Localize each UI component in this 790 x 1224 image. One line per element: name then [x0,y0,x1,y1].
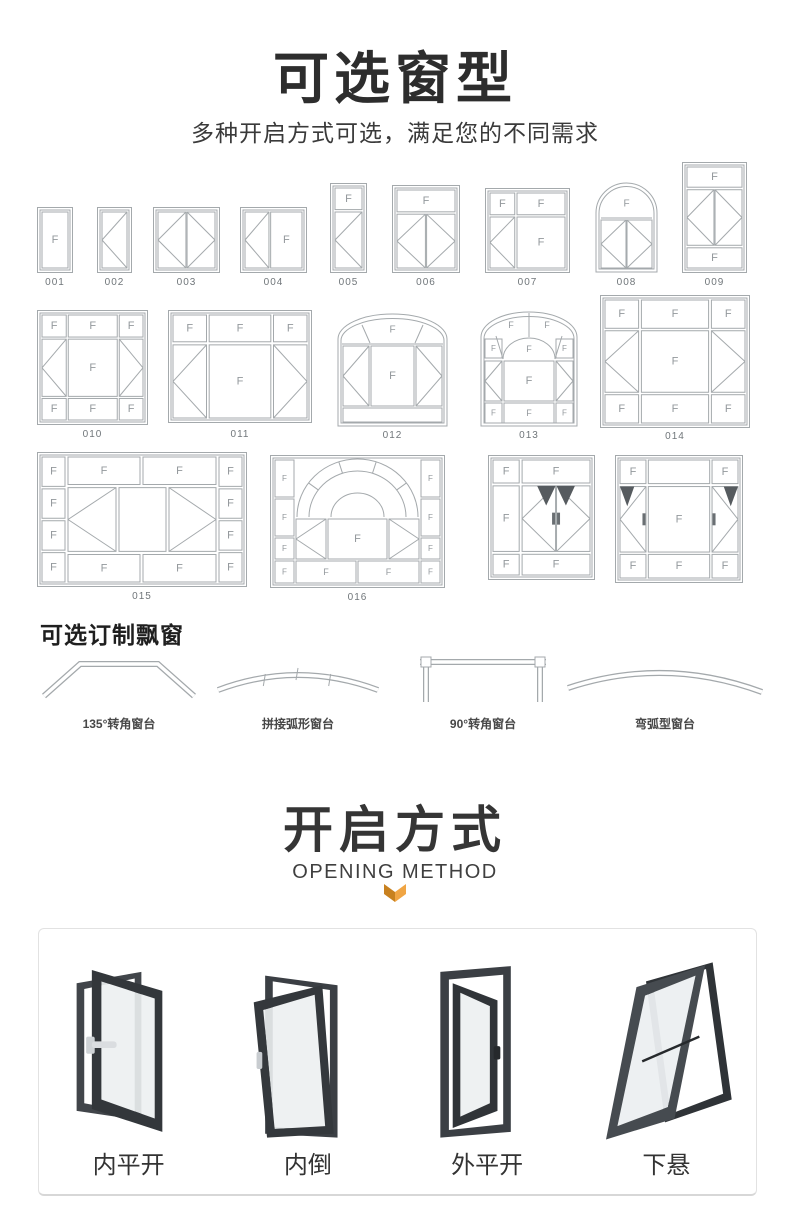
fixed-pane-letter: F [128,320,135,332]
fixed-pane-letter: F [503,559,510,571]
window-code-label: 001 [37,277,73,288]
window-diagram-007: FFF [485,188,570,273]
window-diagram-004: F [240,207,307,273]
window-diagram-001: F [37,207,73,273]
fixed-pane-letter: F [491,409,496,418]
fixed-pane-letter: F [282,474,287,483]
fixed-pane-letter: F [538,237,545,249]
window-code-label: 002 [97,277,132,288]
window-diagram-003 [153,207,220,273]
fixed-pane-letter: F [176,465,183,477]
photo-cell-tilt-in: 内倒 [218,929,397,1194]
window-diagram-009: FF [682,162,747,273]
fixed-pane-letter: F [227,498,234,510]
fixed-pane-letter: F [503,466,510,478]
fixed-pane-letter: F [101,562,108,574]
fixed-pane-letter: F [722,560,729,572]
fixed-pane-letter: F [672,403,679,415]
corner135-profile-drawing [38,650,200,706]
fixed-pane-letter: F [711,171,718,183]
photo-cell-bottom-hung: 下悬 [577,929,756,1194]
fixed-pane-letter: F [50,498,57,510]
fixed-pane-letter: F [508,320,514,330]
photo-cell-inward-casement: 内平开 [39,929,218,1194]
fixed-pane-letter: F [345,193,352,205]
fixed-pane-letter: F [630,466,637,478]
window-diagram-012: FF [337,312,448,427]
bay-item-corner135: 135°转角窗台 [38,650,200,732]
bay-window-heading: 可选订制飘窗 [40,616,184,650]
segmented-arc-profile-drawing [212,650,384,706]
fixed-pane-letter: F [282,544,287,553]
window-code-label: 012 [337,430,448,441]
fixed-pane-letter: F [186,322,193,334]
fixed-pane-letter: F [553,559,560,571]
window-diagram-011: FFFF [168,310,312,423]
photo-cell-outward-casement: 外平开 [398,929,577,1194]
bay-item-corner90: 90°转角窗台 [412,650,554,732]
fixed-pane-letter: F [491,344,496,353]
bay-item-segmented-arc: 拼接弧形窗台 [212,650,384,732]
window-code-label: 009 [682,277,747,288]
opening-method-title: 开启方式 [0,790,790,862]
fixed-pane-letter: F [676,560,683,572]
window-code-label: 007 [485,277,570,288]
fixed-pane-letter: F [544,320,550,330]
fixed-pane-letter: F [227,529,234,541]
fixed-pane-letter: F [237,322,244,334]
opening-method-label: 外平开 [398,1145,577,1180]
window-diagram-005: F [330,183,367,273]
fixed-pane-letter: F [227,466,234,478]
bay-item-curved-arc: 弯弧型窗台 [562,650,768,732]
fixed-pane-letter: F [227,561,234,573]
fixed-pane-letter: F [428,568,433,577]
fixed-pane-letter: F [423,195,430,207]
opening-method-label: 下悬 [577,1145,756,1180]
corner90-profile-drawing [412,650,554,706]
window-diagram-014: FFFFFFF [600,295,750,428]
fixed-pane-letter: F [722,466,729,478]
fixed-pane-letter: F [526,408,532,418]
window-code-label: 006 [392,277,460,288]
window-code-label: 008 [595,277,658,288]
fixed-pane-letter: F [89,320,96,332]
photo-bottom-hung [581,949,751,1149]
window-diagram-013: FFFFFFFFF [480,310,578,427]
window-diagram-extra-17: FFFFFF [615,455,743,583]
fixed-pane-letter: F [526,375,533,387]
fixed-pane-letter: F [51,403,58,415]
fixed-pane-letter: F [711,252,718,264]
bay-label: 90°转角窗台 [412,715,554,732]
down-chevron-icon [382,884,408,904]
window-code-label: 016 [270,592,445,603]
curved-arc-profile-drawing [562,650,768,706]
window-code-label: 015 [37,591,247,602]
fixed-pane-letter: F [562,344,567,353]
fixed-pane-letter: F [51,320,58,332]
fixed-pane-letter: F [428,513,433,522]
fixed-pane-letter: F [538,198,545,210]
window-diagram-016: FFFFFFFFFFF [270,455,445,588]
fixed-pane-letter: F [428,474,433,483]
fixed-pane-letter: F [503,513,510,525]
window-code-label: 011 [168,429,312,440]
bay-label: 拼接弧形窗台 [212,715,384,732]
window-diagram-002 [97,207,132,273]
window-code-label: 004 [240,277,307,288]
fixed-pane-letter: F [630,560,637,572]
opening-method-subtitle: OPENING METHOD [0,861,790,884]
fixed-pane-letter: F [672,356,679,368]
fixed-pane-letter: F [101,465,108,477]
fixed-pane-letter: F [354,533,361,545]
bay-label: 弯弧型窗台 [562,715,768,732]
fixed-pane-letter: F [553,466,560,478]
window-diagram-extra-16: FFFFF [488,455,595,580]
fixed-pane-letter: F [618,403,625,415]
window-code-label: 005 [330,277,367,288]
fixed-pane-letter: F [50,561,57,573]
opening-method-label: 内倒 [218,1145,397,1180]
fixed-pane-letter: F [725,403,732,415]
fixed-pane-letter: F [176,562,183,574]
fixed-pane-letter: F [389,370,396,382]
fixed-pane-letter: F [389,325,395,336]
fixed-pane-letter: F [562,409,567,418]
product-poster: 可选窗型 多种开启方式可选，满足您的不同需求 F001002003F004F00… [0,0,790,1224]
fixed-pane-letter: F [287,322,294,334]
photo-outward-casement [402,949,572,1149]
fixed-pane-letter: F [623,199,629,210]
fixed-pane-letter: F [52,234,59,246]
window-diagram-006: F [392,185,460,273]
fixed-pane-letter: F [128,403,135,415]
fixed-pane-letter: F [323,567,329,577]
fixed-pane-letter: F [618,308,625,320]
fixed-pane-letter: F [89,362,96,374]
window-code-label: 010 [37,429,148,440]
opening-method-gallery: 内平开内倒外平开下悬 [38,928,757,1196]
fixed-pane-letter: F [237,375,244,387]
fixed-pane-letter: F [89,403,96,415]
fixed-pane-letter: F [50,529,57,541]
fixed-pane-letter: F [282,568,287,577]
window-diagram-010: FFFFFFF [37,310,148,425]
bay-label: 135°转角窗台 [38,715,200,732]
fixed-pane-letter: F [725,308,732,320]
photo-tilt-in [223,949,393,1149]
opening-method-label: 内平开 [39,1145,218,1180]
fixed-pane-letter: F [499,198,506,210]
window-code-label: 003 [153,277,220,288]
fixed-pane-letter: F [283,234,290,246]
fixed-pane-letter: F [50,466,57,478]
window-diagram-015: FFFFFFFFFFFF [37,452,247,587]
window-code-label: 014 [600,431,750,442]
photo-inward-casement [44,949,214,1149]
fixed-pane-letter: F [386,567,392,577]
fixed-pane-letter: F [676,513,683,525]
fixed-pane-letter: F [428,544,433,553]
window-diagram-008: F [595,182,658,273]
fixed-pane-letter: F [282,513,287,522]
window-code-label: 013 [480,430,578,441]
fixed-pane-letter: F [672,308,679,320]
fixed-pane-letter: F [526,344,532,354]
